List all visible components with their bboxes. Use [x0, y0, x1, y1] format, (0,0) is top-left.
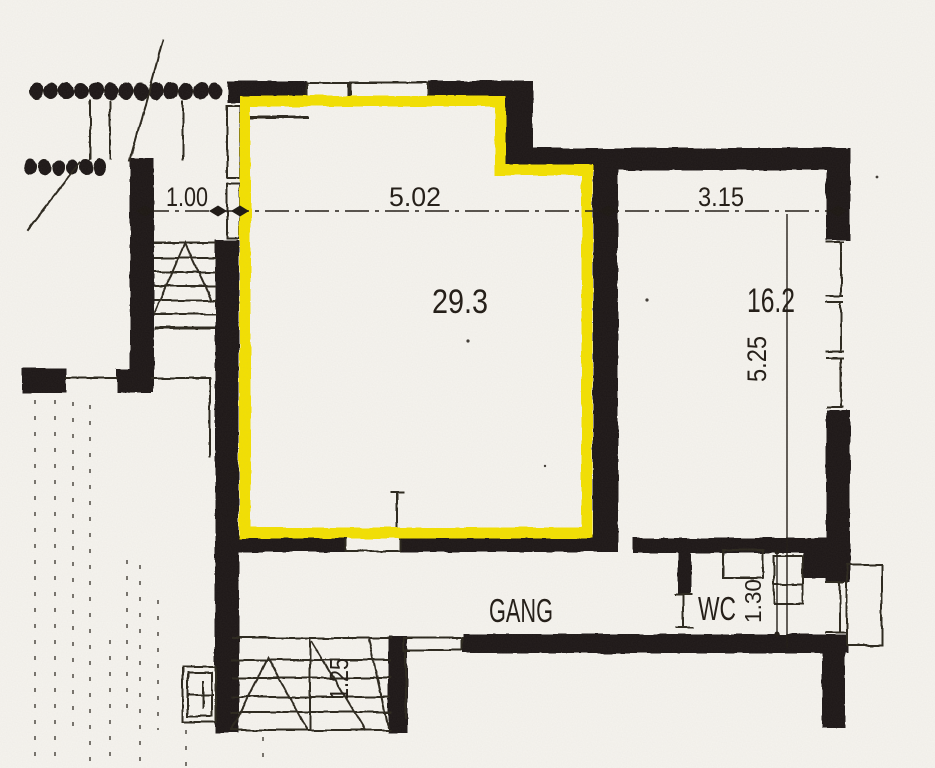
floor-plan-svg: 1.00 5.02 3.15 29.3 16.2 5.25 1.30 1.25 … [0, 0, 935, 768]
floor-plan-scan: 1.00 5.02 3.15 29.3 16.2 5.25 1.30 1.25 … [0, 0, 935, 768]
scan-grain-overlay [0, 0, 935, 768]
